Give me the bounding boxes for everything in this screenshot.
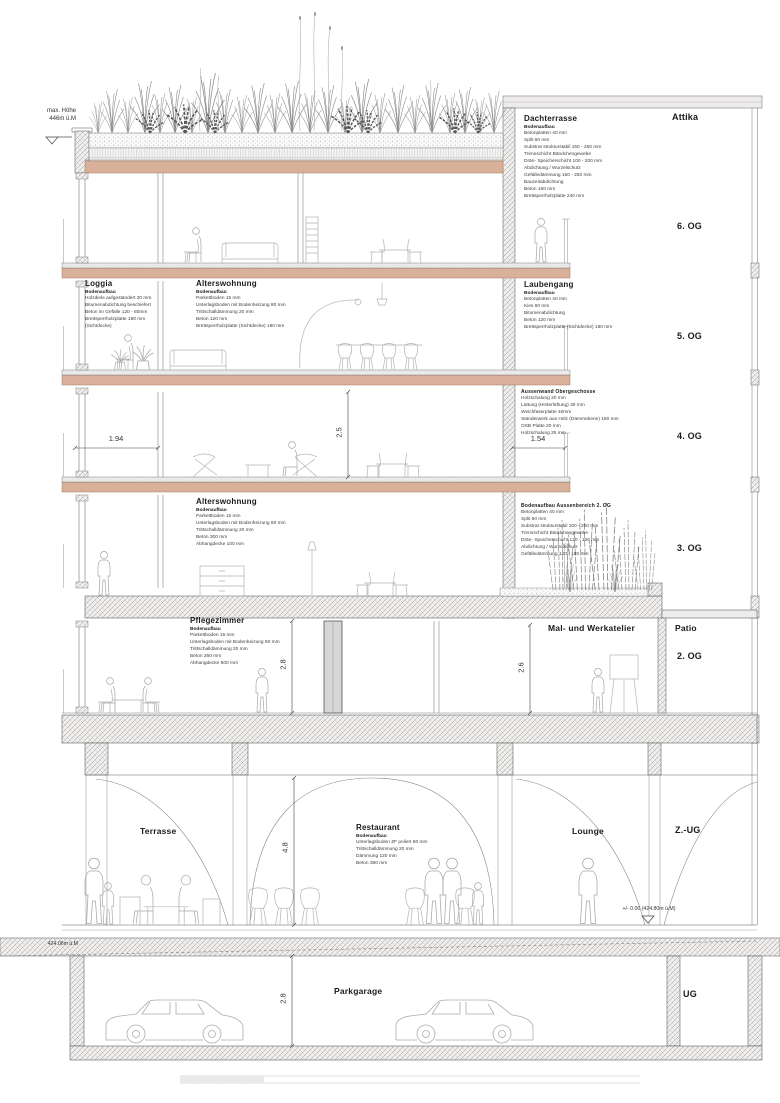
spec-layer-list: Betonplatten 40 mmKies 60 mmBitumenabdic… <box>524 296 612 331</box>
level-label-3og: 3. OG <box>677 543 702 553</box>
main-right-wall <box>503 108 515 618</box>
level-label-4og: 4. OG <box>677 431 702 441</box>
max-height-line2: 446m ü.M <box>30 115 76 123</box>
terrain-level-marker: 424.06m ü.M <box>30 941 78 947</box>
spec-layer-list: Parkettboden 15 mmUnterlagsboden mit Bod… <box>190 632 280 667</box>
spec-dachterrasse: Dachterrasse Bodenaufbau Betonplatten 40… <box>524 114 602 200</box>
level-label-2og: 2. OG <box>677 651 702 661</box>
dim-laubengang-width: 1.54 <box>518 434 558 443</box>
spec-line: Abdichtung / Wurzelschutz <box>524 165 602 172</box>
spec-line: Betonplatten 40 mm <box>524 130 602 137</box>
spec-line: Trittschalldämmung 20 mm <box>196 309 286 316</box>
spec-line: Parkettboden 15 mm <box>190 632 280 639</box>
level-label-6og: 6. OG <box>677 221 702 231</box>
spec-line: Beton 120 mm <box>196 316 286 323</box>
spec-title-dachterrasse: Dachterrasse <box>524 114 602 123</box>
spec-line: Unterlagsboden mit Bodenheizung 80 mm <box>196 520 286 527</box>
zero-level-marker: +/- 0.00 (424.80m ü.M) <box>606 906 692 912</box>
spec-alterswohnung-5og: Alterswohnung Bodenaufbau Parkettboden 1… <box>196 279 286 330</box>
spec-alterswohnung-3og: Alterswohnung Bodenaufbau Parkettboden 1… <box>196 497 286 548</box>
max-height-marker-icon <box>46 137 58 144</box>
building-section-drawing: Attika 6. OG 5. OG 4. OG 3. OG 2. OG Z.-… <box>0 0 780 1103</box>
spec-line: (Sichtdecke) <box>85 323 151 330</box>
spec-line: Kies 60 mm <box>524 303 612 310</box>
level-label-attika: Attika <box>672 112 698 122</box>
dim-loggia-width: 1.94 <box>96 434 136 443</box>
room-label-parkgarage: Parkgarage <box>334 986 382 996</box>
spec-line: Substrat strukturstabil 100 - 200 mm <box>521 523 611 530</box>
dim-2og-right-height: 2.6 <box>517 662 526 672</box>
spec-line: Holzdiele aufgeständert 20 mm <box>85 295 151 302</box>
dim-zug-height: 4.8 <box>281 842 290 852</box>
spec-title-pflegezimmer: Pflegezimmer <box>190 616 280 625</box>
spec-layer-list: Betonplatten 40 mmSplit 60 mmSubstrat st… <box>524 130 602 200</box>
spec-line: Beton 380 mm <box>356 860 427 867</box>
zero-level-marker-icon <box>642 916 654 923</box>
car-right <box>396 1000 533 1043</box>
spec-line: Bitumenabdichtung <box>524 310 612 317</box>
spec-line: Drän- Speicherschicht 100 - 200 mm <box>524 158 602 165</box>
spec-line: Substrat strukturstabil 150 - 250 mm <box>524 144 602 151</box>
spec-line: Split 60 mm <box>524 137 602 144</box>
spec-line: Abhangdecke 500 mm <box>190 660 280 667</box>
spec-line: Unterlagsboden mit Bodenheizung 80 mm <box>196 302 286 309</box>
room-label-lounge: Lounge <box>572 826 604 836</box>
dim-2og-left-height: 2.8 <box>279 659 288 669</box>
spec-line: Gefälledämmung 150 - 250 mm <box>524 172 602 179</box>
spec-line: Trittschalldämmung 20 mm <box>190 646 280 653</box>
spec-line: Parkettboden 15 mm <box>196 295 286 302</box>
spec-title-loggia: Loggia <box>85 279 151 288</box>
level-label-5og: 5. OG <box>677 331 702 341</box>
spec-layer-list: Holzdiele aufgeständert 20 mmBitumenabdi… <box>85 295 151 330</box>
spec-line: Bitumenabdichtung beschiefert <box>85 302 151 309</box>
spec-layer-list: Parkettboden 15 mmUnterlagsboden mit Bod… <box>196 513 286 548</box>
spec-line: Trennschicht Bändchengewebe <box>521 530 611 537</box>
spec-line: Unterlagsboden mit Bodenheizung 80 mm <box>190 639 280 646</box>
spec-title-restaurant: Restaurant <box>356 823 427 832</box>
room-label-patio: Patio <box>675 623 697 633</box>
spec-aussenwand: Aussenwand Obergeschosse Holzschalung 20… <box>521 389 619 437</box>
spec-layer-list: Parkettboden 15 mmUnterlagsboden mit Bod… <box>196 295 286 330</box>
spec-laubengang: Laubengang Bodenaufbau Betonplatten 40 m… <box>524 280 612 331</box>
spec-loggia: Loggia Bodenaufbau Holzdiele aufgestände… <box>85 279 151 330</box>
spec-line: Beton 300 mm <box>196 534 286 541</box>
spec-layer-list: Betonplatten 40 mmSplit 60 mmSubstrat st… <box>521 509 611 558</box>
spec-line: Brettsperrholzplatte 240 mm <box>524 193 602 200</box>
parking-level <box>70 956 762 1083</box>
spec-layer-list: Unterlagsboden ZF poliert 80 mmTrittscha… <box>356 839 427 867</box>
dim-ug-height: 2.8 <box>279 993 288 1003</box>
slab-3og-patio <box>85 583 757 618</box>
spec-line: Unterlagsboden ZF poliert 80 mm <box>356 839 427 846</box>
spec-line: OSB Platte 20 mm <box>521 423 619 430</box>
level-label-zug: Z.-UG <box>675 825 701 835</box>
spec-layer-list: Holzschalung 20 mmLattung (Hinterlüftung… <box>521 395 619 437</box>
level-label-ug: UG <box>683 989 697 999</box>
spec-line: Bauzeitabdichtung <box>524 179 602 186</box>
spec-line: Weichfaserplatte 40mm <box>521 409 619 416</box>
spec-line: Beton 120 mm <box>524 317 612 324</box>
spec-line: Brettsperrholzplatte (Sichtdecke) 180 mm <box>196 323 286 330</box>
dim-4og-height: 2.5 <box>335 427 344 437</box>
spec-line: Betonplatten 40 mm <box>524 296 612 303</box>
spec-line: Betonplatten 40 mm <box>521 509 611 516</box>
spec-line: Lattung (Hinterlüftung) 30 mm <box>521 402 619 409</box>
max-height-marker: max. Höhe 446m ü.M <box>30 107 76 123</box>
spec-line: Brettsperrholzplatte (Sichtdecke) 180 mm <box>524 324 612 331</box>
ground-slab <box>0 930 780 956</box>
spec-aussenbereich-2og: Bodenaufbau Aussenbereich 2. OG Betonpla… <box>521 503 611 558</box>
spec-pflegezimmer: Pflegezimmer Bodenaufbau Parkettboden 15… <box>190 616 280 667</box>
spec-title-laubengang: Laubengang <box>524 280 612 289</box>
spec-line: Parkettboden 15 mm <box>196 513 286 520</box>
spec-line: Beton 160 mm <box>524 186 602 193</box>
spec-line: Brettsperrholzplatte 180 mm <box>85 316 151 323</box>
spec-line: Gefälledämmung 120 - 180 mm <box>521 551 611 558</box>
room-label-terrasse: Terrasse <box>140 826 176 836</box>
max-height-line1: max. Höhe <box>30 107 76 115</box>
spec-line: Trittschalldämmung 20 mm <box>196 527 286 534</box>
slab-2og <box>62 713 757 775</box>
spec-restaurant: Restaurant Bodenaufbau Unterlagsboden ZF… <box>356 823 427 867</box>
car-left <box>106 1000 243 1043</box>
spec-line: Abhangdecke 100 mm <box>196 541 286 548</box>
spec-line: Ständerwerk aus Holz (Dämmebene) 180 mm <box>521 416 619 423</box>
spec-line: Trittschalldämmung 20 mm <box>356 846 427 853</box>
spec-line: Dämmung 120 mm <box>356 853 427 860</box>
room-label-werkatelier: Mal- und Werkatelier <box>548 623 635 633</box>
section-linework <box>0 0 780 1103</box>
spec-line: Beton im Gefälle 120 - 80mm <box>85 309 151 316</box>
spec-line: Beton 260 mm <box>190 653 280 660</box>
green-roof-vegetation <box>89 12 505 133</box>
spec-line: Drän- Speicherschicht 120 - 100 mm <box>521 537 611 544</box>
left-facade-windows <box>76 173 88 713</box>
spec-title-alterswohnung: Alterswohnung <box>196 279 286 288</box>
spec-line: Holzschalung 20 mm <box>521 395 619 402</box>
spec-line: Split 60 mm <box>521 516 611 523</box>
spec-title-alterswohnung: Alterswohnung <box>196 497 286 506</box>
spec-line: Abdichtung / Wurzelschutz <box>521 544 611 551</box>
spec-line: Trennschicht Bändchengewebe <box>524 151 602 158</box>
